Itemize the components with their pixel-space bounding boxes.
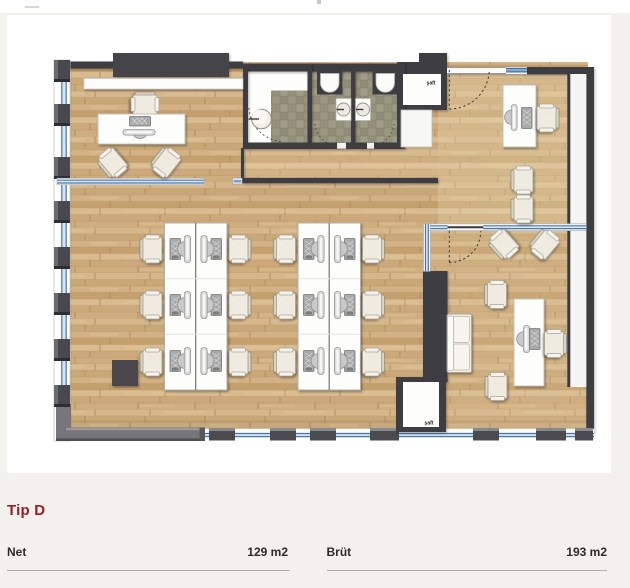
svg-text:şaft: şaft — [427, 81, 436, 87]
svg-text:şaft: şaft — [425, 421, 434, 427]
